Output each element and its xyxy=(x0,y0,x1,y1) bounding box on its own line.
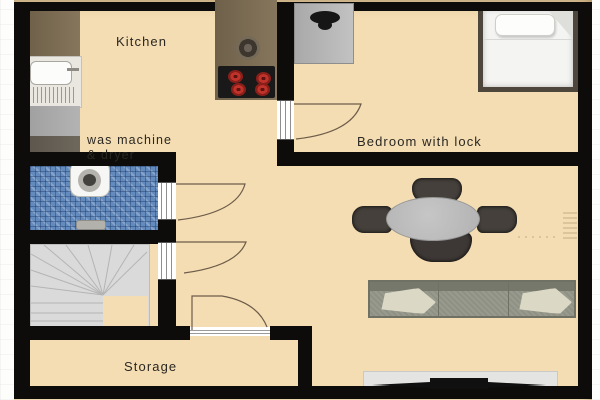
kitchen-appliance-gray xyxy=(22,106,80,136)
round-dining-table xyxy=(386,197,480,241)
kitchen-sink-basin xyxy=(30,61,72,85)
dining-chair-right xyxy=(477,206,517,233)
kitchen-to-bedroom-door-jamb xyxy=(277,100,294,140)
bedside-appliance xyxy=(294,3,354,64)
wall-storage-right xyxy=(298,326,312,398)
faucet-icon xyxy=(67,68,79,71)
floor-plan: Kitchen was machine & dryer Bedroom with… xyxy=(0,0,600,400)
toilet-bowl xyxy=(78,169,101,192)
burner-icon xyxy=(231,83,246,96)
wall-kitchen-bedroom-upper xyxy=(277,2,294,100)
sofa-seam xyxy=(438,282,439,316)
wall-stairs-storage xyxy=(14,326,190,340)
washer-dryer-unit xyxy=(22,136,80,153)
sofa-cushion-right xyxy=(516,288,572,314)
bed-pillow xyxy=(495,14,555,36)
hall-to-bathroom-door-jamb xyxy=(158,182,176,220)
hall-to-stairs-door-jamb xyxy=(158,242,176,280)
wall-bedroom-living xyxy=(277,152,592,166)
wall-outer-right xyxy=(578,2,592,398)
island-counter xyxy=(215,0,277,100)
stove xyxy=(218,66,275,98)
round-counter-sink xyxy=(236,36,260,60)
kitchen-label: Kitchen xyxy=(116,34,167,49)
hall-to-storage-door-sill xyxy=(190,327,270,336)
sofa-seam xyxy=(508,282,509,316)
drainboard xyxy=(29,87,75,103)
burner-icon xyxy=(228,70,243,83)
wall-bathroom-stairs xyxy=(14,230,176,244)
kitchen-sink-unit xyxy=(22,56,82,108)
storage-label: Storage xyxy=(124,359,177,374)
laundry-label-line1: was machine xyxy=(87,133,172,147)
dark-pot-base-icon xyxy=(318,20,332,30)
burner-icon xyxy=(255,83,270,96)
double-bed xyxy=(478,4,578,92)
laundry-label-line2: & dryer xyxy=(87,148,135,162)
wall-hall-left-1 xyxy=(158,152,176,182)
stairs-landing-notch xyxy=(103,296,148,326)
toilet-drain xyxy=(83,174,96,186)
sofa-backrest xyxy=(370,282,574,291)
bedroom-label: Bedroom with lock xyxy=(357,134,482,149)
sofa-cushion-left xyxy=(378,288,436,314)
three-seat-sofa xyxy=(368,280,576,318)
sheet-crease xyxy=(483,39,573,40)
bathroom-toilet xyxy=(70,161,110,197)
shower-drain-step xyxy=(76,220,106,230)
kitchen-counter-left xyxy=(28,4,80,58)
